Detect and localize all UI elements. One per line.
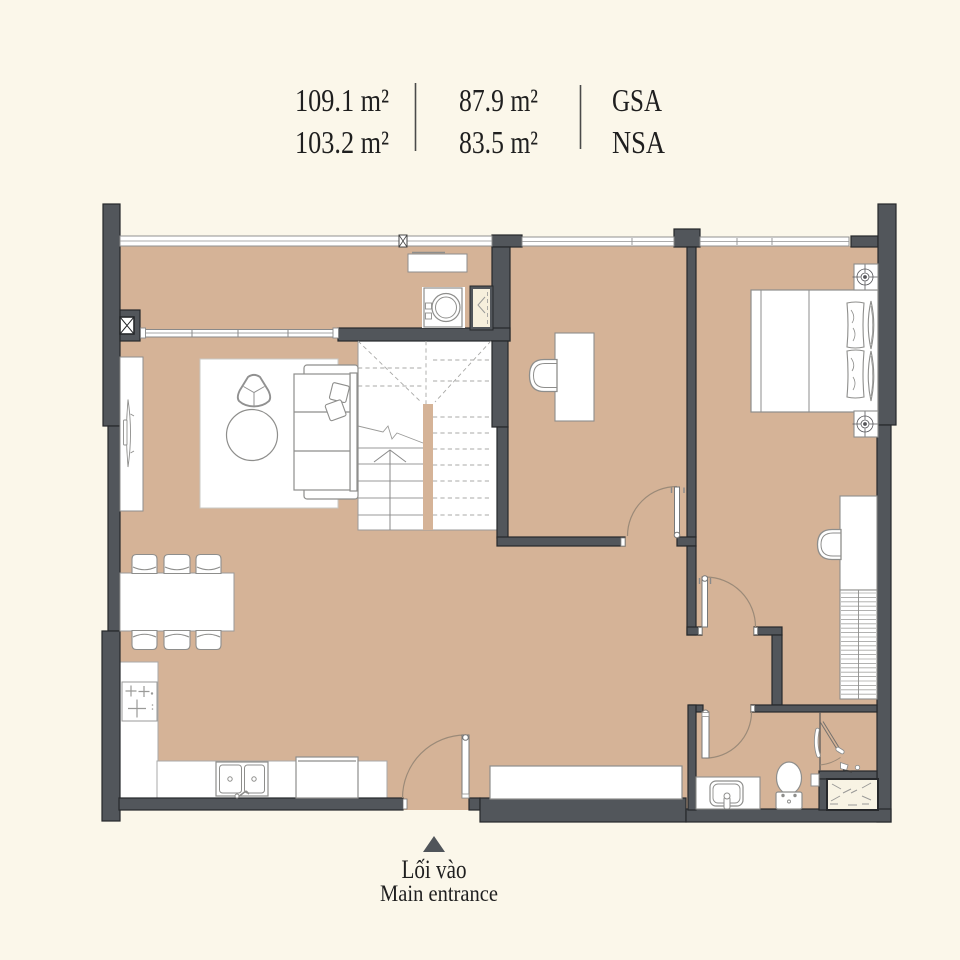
svg-text:Lối vào: Lối vào [402, 855, 467, 884]
svg-text:103.2 m²: 103.2 m² [295, 124, 389, 160]
svg-text:NSA: NSA [612, 124, 665, 160]
svg-text:109.1 m²: 109.1 m² [295, 82, 389, 118]
svg-text:GSA: GSA [612, 82, 662, 118]
svg-text:87.9 m²: 87.9 m² [459, 82, 538, 118]
svg-text:Main entrance: Main entrance [380, 881, 498, 906]
svg-text:83.5 m²: 83.5 m² [459, 124, 538, 160]
